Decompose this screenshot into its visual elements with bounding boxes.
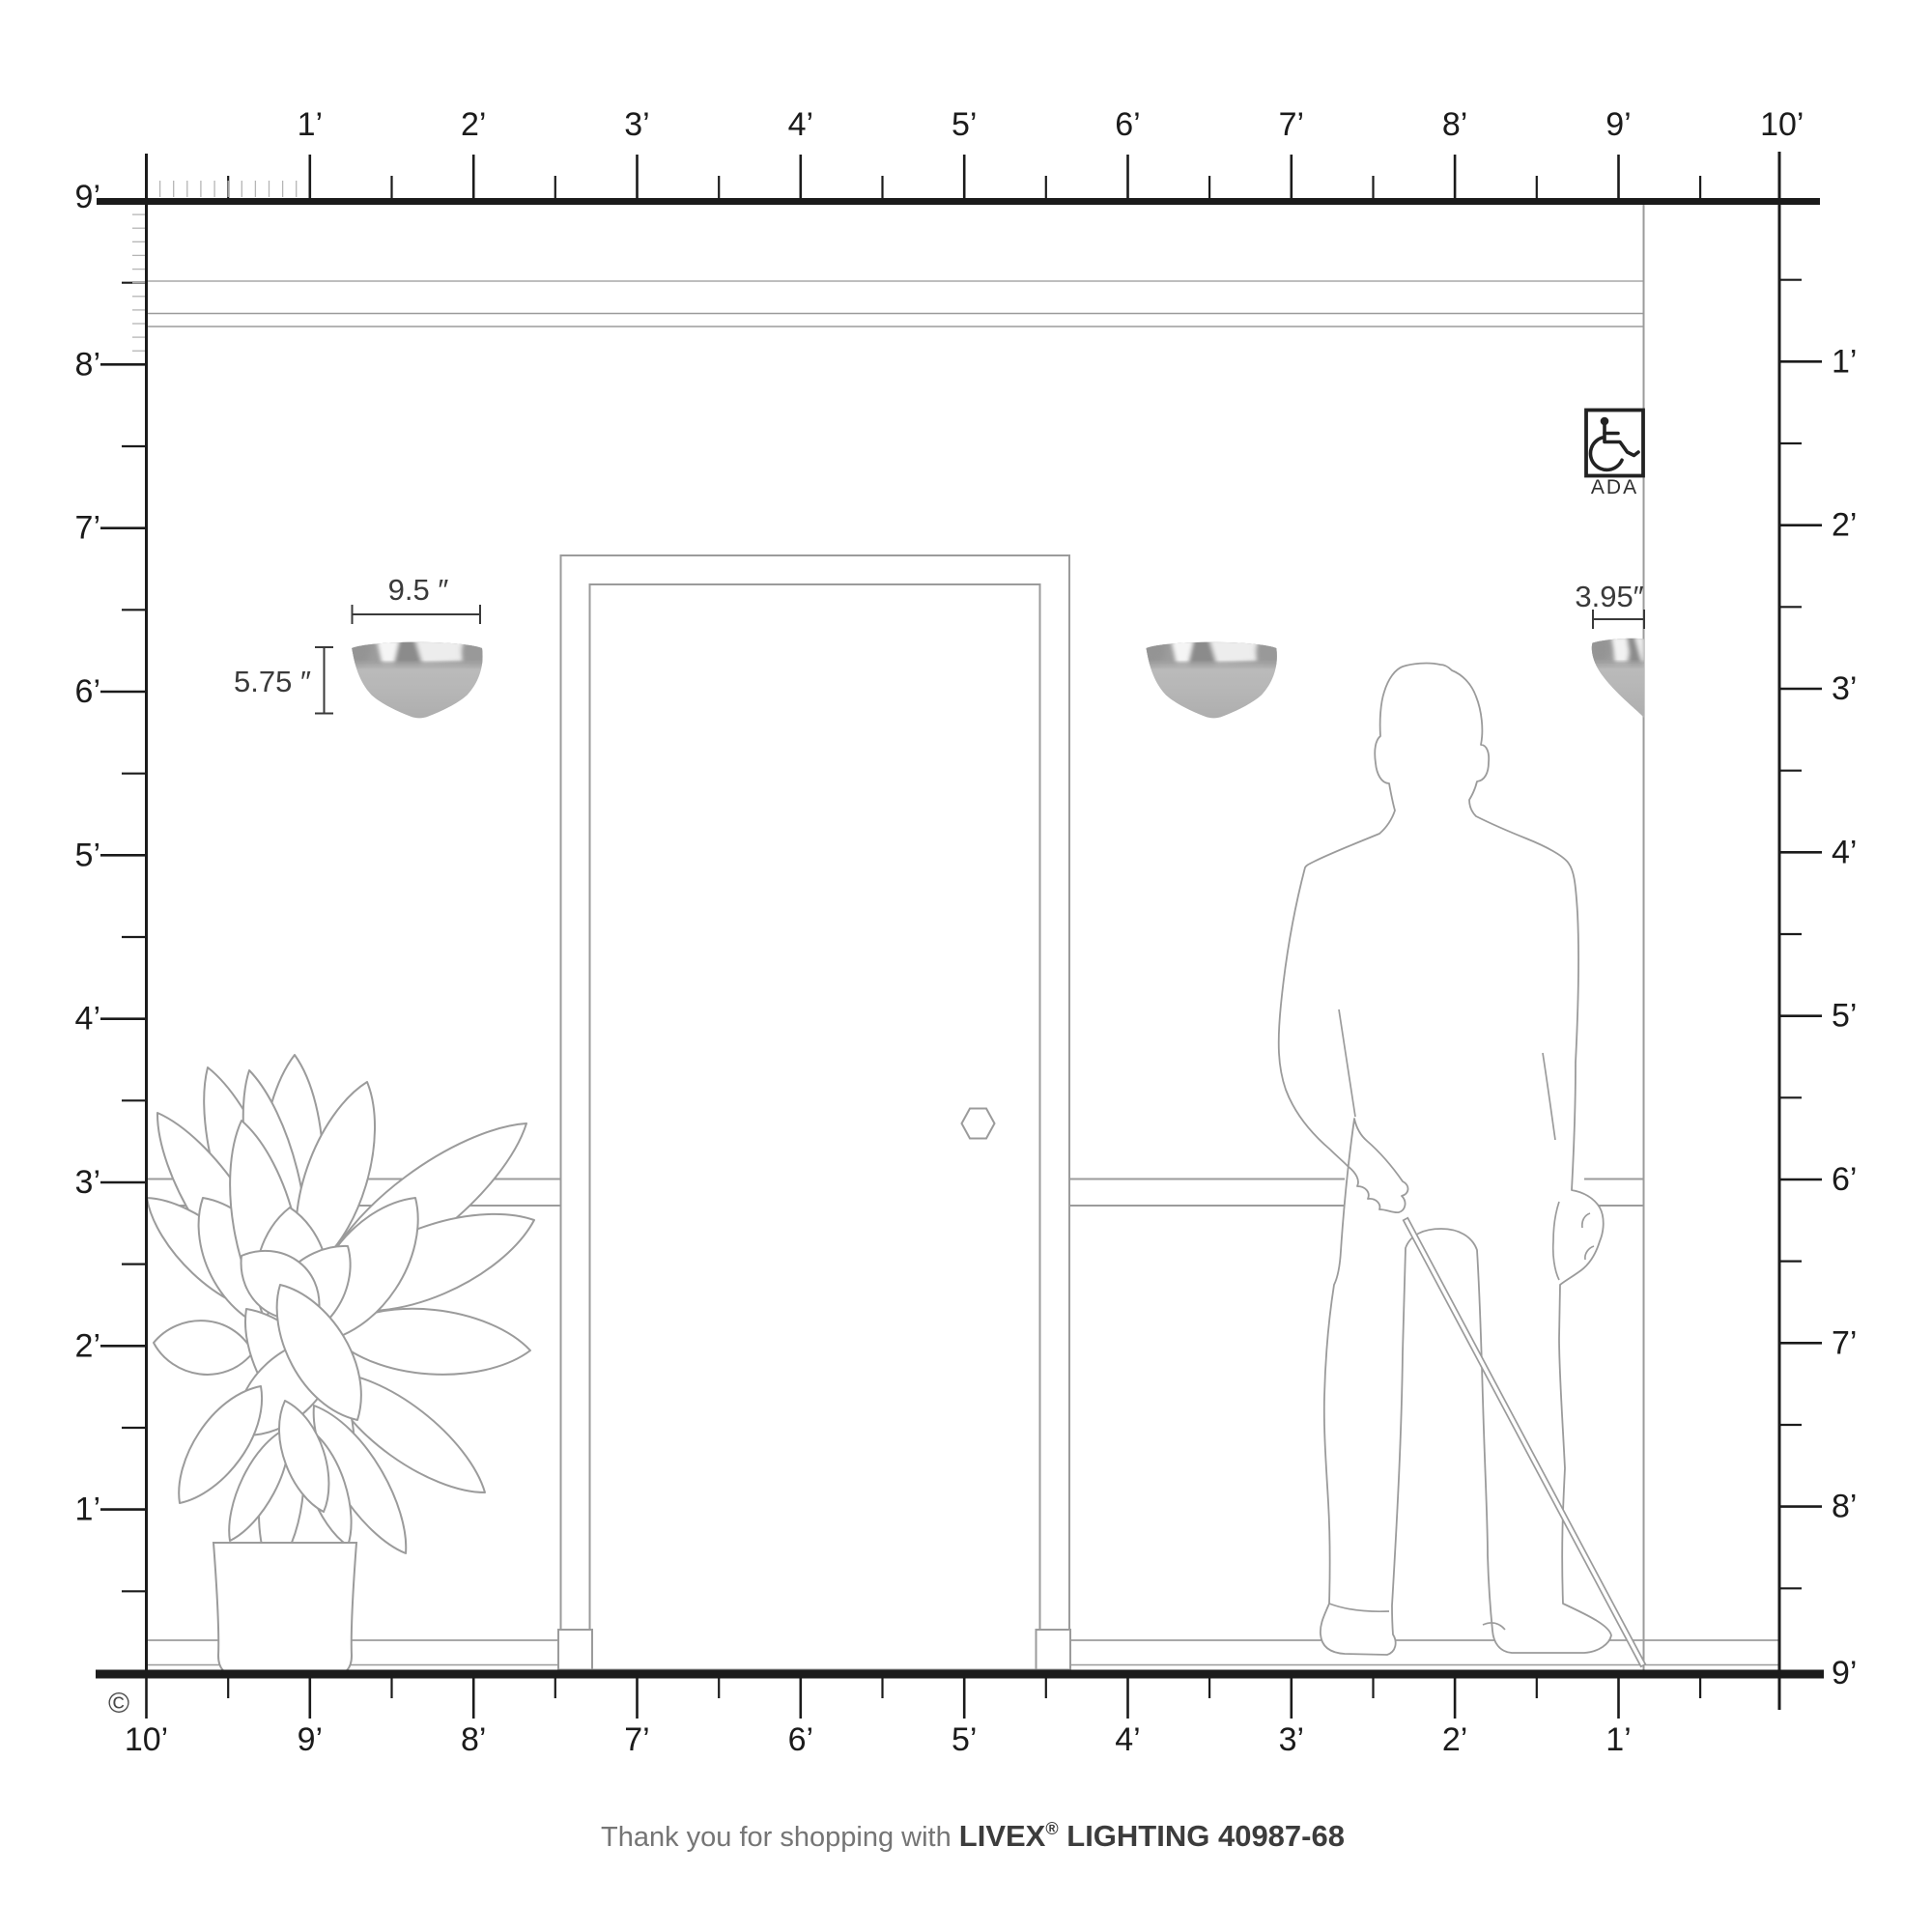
svg-text:5’: 5’ <box>952 106 977 143</box>
svg-text:9’: 9’ <box>1832 1655 1857 1691</box>
svg-text:4’: 4’ <box>75 1001 100 1037</box>
svg-text:3’: 3’ <box>75 1164 100 1201</box>
svg-text:7’: 7’ <box>1279 106 1304 143</box>
svg-text:1’: 1’ <box>1605 1721 1631 1758</box>
svg-text:5’: 5’ <box>75 837 100 873</box>
svg-text:4’: 4’ <box>788 106 813 143</box>
svg-text:8’: 8’ <box>461 1721 486 1758</box>
svg-text:3’: 3’ <box>1832 670 1857 707</box>
svg-text:1’: 1’ <box>298 106 323 143</box>
svg-text:5’: 5’ <box>952 1721 977 1758</box>
svg-text:10’: 10’ <box>1760 106 1804 143</box>
svg-text:6’: 6’ <box>788 1721 813 1758</box>
svg-text:9’: 9’ <box>1605 106 1631 143</box>
svg-text:7’: 7’ <box>624 1721 649 1758</box>
svg-text:4’: 4’ <box>1115 1721 1140 1758</box>
svg-text:10’: 10’ <box>125 1721 168 1758</box>
svg-text:5.75 ″: 5.75 ″ <box>234 665 311 698</box>
svg-text:3.95″: 3.95″ <box>1575 580 1643 613</box>
svg-text:9.5 ″: 9.5 ″ <box>388 573 449 607</box>
svg-text:2’: 2’ <box>1832 507 1857 544</box>
svg-text:1’: 1’ <box>75 1492 100 1528</box>
svg-text:6’: 6’ <box>1832 1161 1857 1198</box>
svg-text:2’: 2’ <box>461 106 486 143</box>
svg-text:4’: 4’ <box>1832 834 1857 870</box>
svg-text:ADA: ADA <box>1591 476 1638 498</box>
svg-text:1’: 1’ <box>1832 343 1857 380</box>
svg-text:7’: 7’ <box>1832 1324 1857 1361</box>
svg-text:8’: 8’ <box>1442 106 1467 143</box>
svg-text:9’: 9’ <box>298 1721 323 1758</box>
svg-text:Thank you for shopping with LI: Thank you for shopping with LIVEX® LIGHT… <box>601 1819 1345 1853</box>
svg-text:3’: 3’ <box>624 106 649 143</box>
svg-text:5’: 5’ <box>1832 998 1857 1035</box>
svg-text:8’: 8’ <box>1832 1489 1857 1525</box>
svg-text:2’: 2’ <box>75 1327 100 1364</box>
svg-text:7’: 7’ <box>75 510 100 547</box>
svg-text:6’: 6’ <box>75 673 100 710</box>
svg-text:©: © <box>108 1688 129 1719</box>
svg-text:2’: 2’ <box>1442 1721 1467 1758</box>
svg-text:6’: 6’ <box>1115 106 1140 143</box>
svg-text:8’: 8’ <box>75 346 100 383</box>
svg-text:9’: 9’ <box>75 179 100 215</box>
svg-text:3’: 3’ <box>1279 1721 1304 1758</box>
